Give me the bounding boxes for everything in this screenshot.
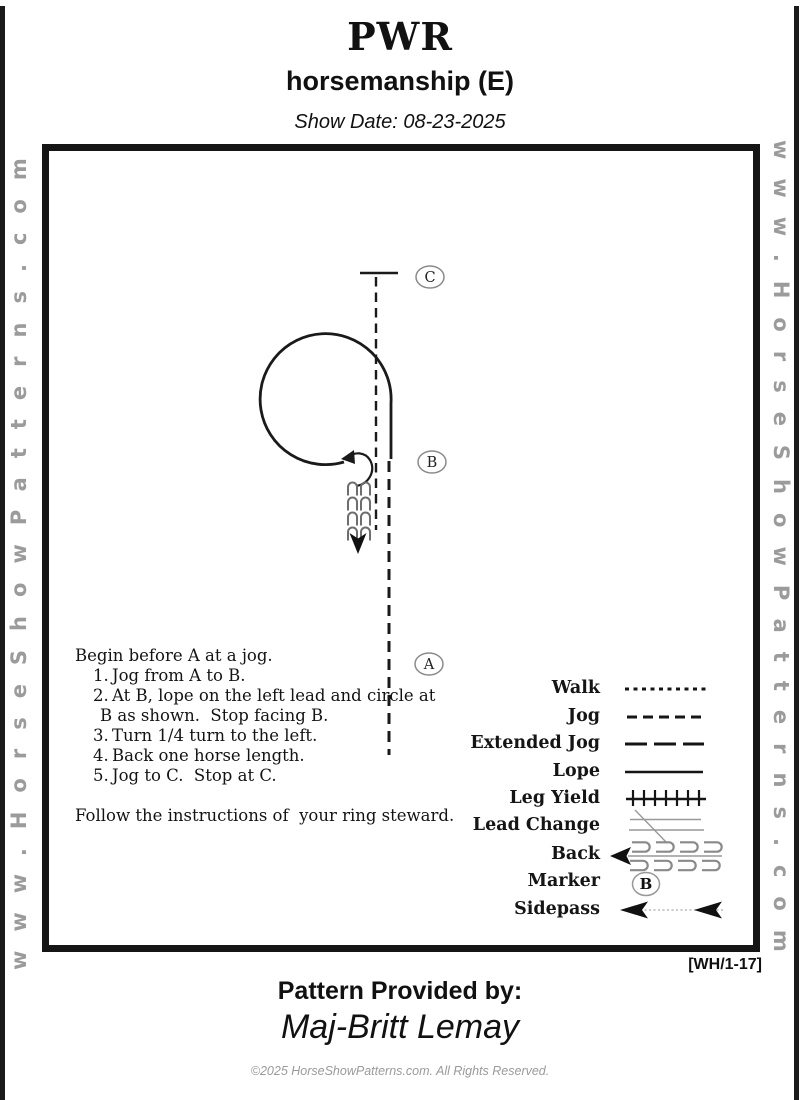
copyright-text: ©2025 HorseShowPatterns.com. All Rights … — [0, 1064, 800, 1078]
legend-label-lope: Lope — [380, 761, 600, 781]
legend-marker-letter: B — [640, 875, 653, 893]
provider-name: Maj-Britt Lemay — [0, 1008, 800, 1047]
legend-sidepass-symbol — [620, 902, 724, 919]
pattern-diagram: C B A — [0, 0, 800, 1100]
legend-label-sidepass: Sidepass — [380, 899, 600, 919]
legend-label-leg-yield: Leg Yield — [380, 788, 600, 808]
marker-c: C — [416, 266, 444, 288]
lope-circle-path — [260, 334, 391, 465]
provided-by-label: Pattern Provided by: — [0, 977, 800, 1006]
marker-b-label: B — [427, 455, 438, 471]
legend-lead-change-symbol — [629, 810, 704, 843]
legend-marker-symbol: B — [633, 873, 660, 896]
marker-b: B — [418, 451, 446, 473]
legend-label-extended-jog: Extended Jog — [380, 733, 600, 753]
legend-leg-yield-symbol — [626, 790, 706, 806]
legend-back-symbol — [610, 842, 722, 870]
legend-label-back: Back — [380, 844, 600, 864]
legend-label-walk: Walk — [380, 678, 600, 698]
marker-c-label: C — [424, 270, 435, 286]
legend-label-jog: Jog — [380, 706, 600, 726]
legend-label-marker: Marker — [380, 871, 600, 891]
legend-label-lead-change: Lead Change — [380, 815, 600, 835]
back-symbol — [348, 483, 370, 541]
pattern-code: [WH/1-17] — [688, 956, 762, 974]
instruction-intro: Begin before A at a jog. — [75, 646, 475, 666]
